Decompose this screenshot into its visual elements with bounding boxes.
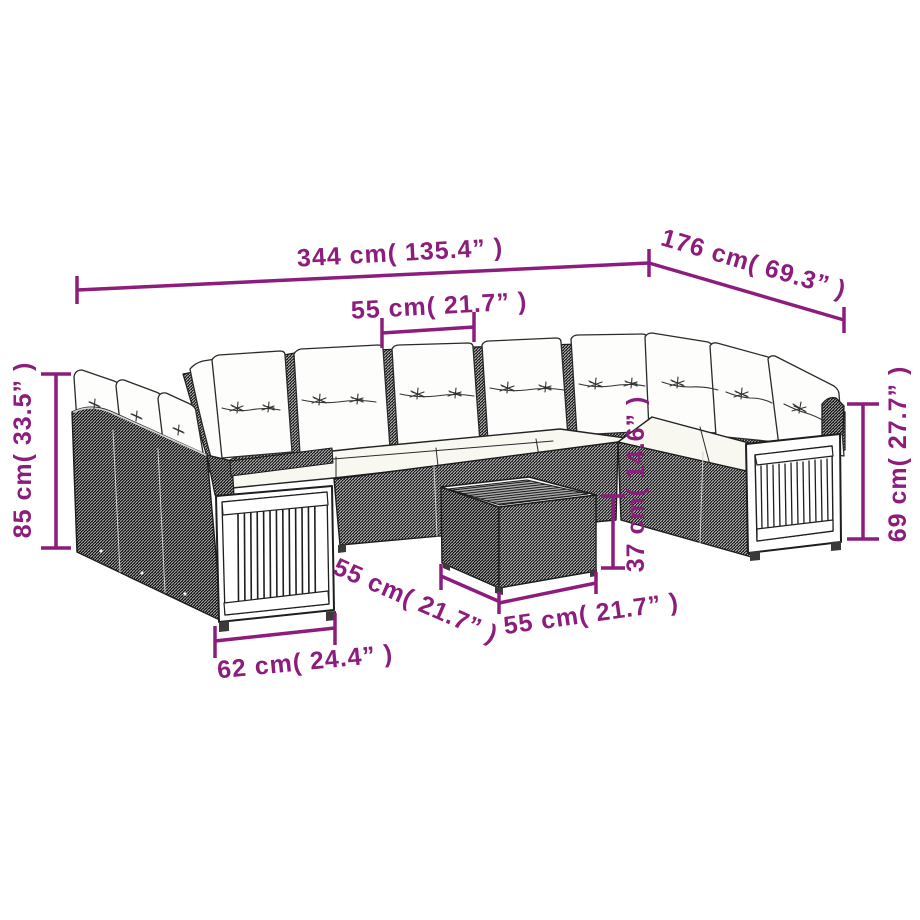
svg-text:69 cm( 27.7” ): 69 cm( 27.7” ) [884, 366, 912, 543]
svg-text:85 cm( 33.5” ): 85 cm( 33.5” ) [9, 362, 37, 539]
svg-text:37 cm( 14.6” ): 37 cm( 14.6” ) [622, 396, 650, 573]
